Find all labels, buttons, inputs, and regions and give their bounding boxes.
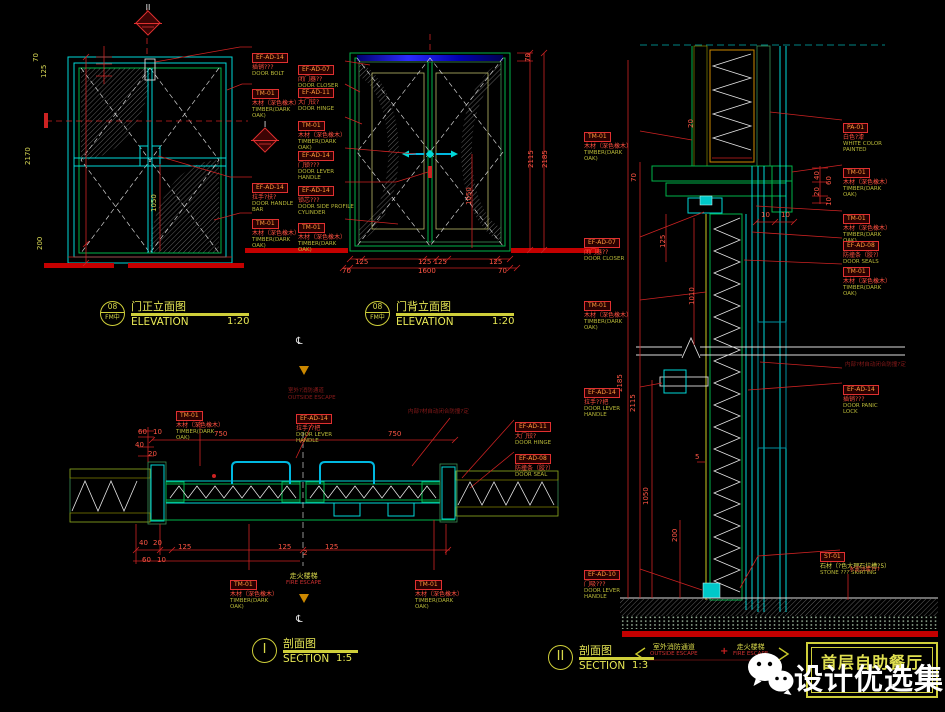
note-en: OUTSIDE ESCAPE: [288, 395, 336, 402]
material-label-cn: 锁芯???: [298, 197, 358, 204]
material-label: EF-AD-14锁芯???DOOR SIDE PROFILE CYLINDER: [298, 177, 358, 216]
material-code: EF-AD-11: [298, 88, 334, 98]
insulation-zigzag: [72, 481, 137, 511]
dimension-text: 1600: [418, 267, 436, 275]
dimension-text: 125: [278, 543, 291, 551]
dimension-text: 10: [825, 197, 833, 206]
view-caption: I剖面图SECTION1:5: [252, 638, 372, 668]
material-label: TM-01木材（深色橡木）TIMBER(DARK OAK): [230, 571, 276, 610]
material-label: TM-01木材（深色橡木）TIMBER(DARK OAK): [176, 402, 222, 441]
material-code: TM-01: [584, 301, 611, 311]
material-label-en: TIMBER(DARK OAK): [252, 237, 298, 249]
material-label-cn: 木材（深色橡木）: [176, 422, 222, 429]
material-code: EF-AD-08: [843, 241, 879, 251]
material-code: TM-01: [415, 580, 442, 590]
material-label: TM-01木材（深色橡木）TIMBER(DARK OAK): [415, 571, 461, 610]
drawing-linework: [0, 0, 945, 712]
dimension-text: 40: [135, 441, 144, 449]
material-code: EF-AD-08: [515, 454, 551, 464]
caption-scale: 1:3: [632, 660, 648, 671]
material-label: EF-AD-14门锁???DOOR LEVER HANDLE: [298, 142, 344, 181]
material-label: EF-AD-08防撞条（胶?）DOOR SEAL: [515, 445, 561, 478]
material-label-en: DOOR LEVER HANDLE: [584, 406, 630, 418]
note-text: 水泥沙浆???: [849, 567, 880, 574]
dimension-text: 5: [695, 453, 699, 461]
material-label-cn: 防撞条（胶?）: [515, 465, 561, 472]
material-label-en: DOOR LEVER HANDLE: [584, 588, 630, 600]
material-code: EF-AD-14: [252, 53, 288, 63]
material-label: EF-AD-14插销???DOOR BOLT: [252, 44, 298, 77]
section-cut-marker: I: [251, 120, 279, 130]
material-label-en: TIMBER(DARK OAK): [230, 598, 276, 610]
material-label-cn: 木材（深色橡木）: [252, 100, 298, 107]
material-label-cn: 大门铰?: [298, 99, 344, 106]
cad-drawing-canvas: EF-AD-14插销???DOOR BOLTTM-01木材（深色橡木）TIMBE…: [0, 0, 945, 712]
section-cut-ref: [259, 143, 271, 145]
dimension-text: 20: [153, 539, 162, 547]
view-caption: II剖面图SECTION1:3: [548, 645, 668, 675]
dimension-text: 60: [825, 176, 833, 185]
material-label-en: TIMBER(DARK OAK): [843, 186, 889, 198]
dimension-text: 20: [687, 119, 695, 128]
dimension-text: 2115: [527, 150, 535, 168]
caption-title-en: SECTION: [283, 653, 329, 665]
material-label: TM-01木材（深色橡木）TIMBER(DARK OAK): [298, 214, 344, 253]
material-label: TM-01木材（深色橡木）TIMBER(DARK OAK): [252, 210, 298, 249]
material-code: TM-01: [843, 214, 870, 224]
dimension-text: 10: [761, 211, 770, 219]
caption-bubble-top: 08: [101, 302, 124, 313]
note-text: 内部?材自动闭合防撞?定: [408, 409, 469, 416]
caption-scale: 1:20: [227, 316, 249, 327]
material-label-cn: 木材（深色橡木）: [584, 143, 630, 150]
material-label-cn: 拉手??把: [584, 399, 630, 406]
material-code: TM-01: [843, 267, 870, 277]
dimension-text: 200: [36, 237, 44, 250]
material-label-cn: 木材（深色橡木）: [843, 179, 889, 186]
material-code: ST-01: [820, 552, 845, 562]
material-label-en: DOOR LEVER HANDLE: [296, 432, 342, 444]
plus-mark: +: [720, 646, 728, 657]
material-label-cn: 白色?漆: [843, 134, 889, 141]
dimension-text: 60: [142, 556, 151, 564]
dimension-text: 70: [32, 53, 40, 62]
dimension-text: 60: [138, 428, 147, 436]
material-label: EF-AD-14插销???DOOR PANIC LOCK: [843, 376, 889, 415]
dimension-text: 200: [671, 529, 679, 542]
section-cut-ref: [142, 26, 154, 28]
material-label-cn: 木材（深色橡木）: [843, 278, 889, 285]
wechat-icon: [746, 650, 794, 698]
insulation-zigzag: [713, 54, 751, 150]
caption-title-cn: 门背立面图: [396, 298, 451, 314]
caption-title-cn: 剖面图: [283, 635, 316, 651]
material-label-en: TIMBER(DARK OAK): [176, 429, 222, 441]
watermark-text: 设计优选集: [794, 656, 944, 698]
material-label-en: DOOR PANIC LOCK: [843, 403, 889, 415]
dimension-text: 2: [303, 549, 307, 557]
material-code: TM-01: [252, 89, 279, 99]
material-label-en: TIMBER(DARK OAK): [843, 285, 889, 297]
down-arrow-icon: [299, 366, 309, 375]
material-label: EF-AD-11大门铰?DOOR HINGE: [298, 79, 344, 112]
material-code: EF-AD-14: [252, 183, 288, 193]
material-code: TM-01: [298, 223, 325, 233]
caption-bubble: I: [252, 638, 277, 663]
dimension-text: 10: [781, 211, 790, 219]
view-caption: 08FM中门背立面图ELEVATION1:20: [365, 301, 528, 331]
note-cn: 内部?材自动闭合防撞?定: [845, 362, 906, 369]
caption-bubble-bottom: FM中: [101, 313, 124, 322]
caption-bubble: 08FM中: [365, 301, 390, 326]
material-label: EF-AD-14拉手?扶?DOOR HANDLE BAR: [252, 174, 298, 213]
material-label: EF-AD-14拉手??把DOOR LEVER HANDLE: [584, 379, 630, 418]
material-label-en: TIMBER(DARK OAK): [584, 319, 630, 331]
note-cn: 走火楼梯: [286, 572, 321, 580]
material-label: TM-01木材（深色橡木）TIMBER(DARK OAK): [584, 292, 630, 331]
material-label: PA-01白色?漆WHITE COLOR PAINTED: [843, 114, 889, 153]
material-label-en: TIMBER(DARK OAK): [252, 107, 298, 119]
dimension-text: 1050: [150, 194, 158, 212]
material-label-cn: 大门铰?: [515, 433, 561, 440]
material-label-cn: 插销???: [843, 396, 889, 403]
note-en: FIRE ESCAPE: [286, 580, 321, 587]
dimension-text: 10: [157, 556, 166, 564]
material-label: EF-AD-07闭门器??DOOR CLOSER: [584, 229, 630, 262]
dimension-text: 2185: [541, 150, 549, 168]
material-label: TM-01木材（深色橡木）TIMBER(DARK OAK): [843, 159, 889, 198]
material-label-cn: 门吸???: [584, 581, 630, 588]
caption-scale: 1:20: [492, 316, 514, 327]
material-code: PA-01: [843, 123, 868, 133]
dimension-text: 125: [325, 543, 338, 551]
material-label-en: DOOR SEAL: [515, 472, 561, 478]
note-text: 内部?材自动闭合防撞?定: [845, 362, 906, 369]
material-code: TM-01: [843, 168, 870, 178]
material-label-cn: 门锁???: [298, 162, 344, 169]
dimension-text: 750: [388, 430, 401, 438]
down-arrow-icon: [299, 594, 309, 603]
material-label: TM-01木材（深色橡木）TIMBER(DARK OAK): [843, 258, 889, 297]
dimension-text: 40: [813, 171, 821, 180]
dimension-text: 70: [498, 267, 507, 275]
material-label-en: DOOR CLOSER: [584, 256, 630, 262]
caption-title-en: ELEVATION: [131, 316, 189, 328]
watermark: 设计优选集: [742, 640, 945, 710]
insulation-zigzag: [170, 486, 296, 498]
dimension-text: 70: [342, 267, 351, 275]
material-label-cn: 插销???: [252, 64, 298, 71]
material-code: EF-AD-07: [298, 65, 334, 75]
material-code: EF-AD-14: [298, 151, 334, 161]
section-cut-line: [134, 23, 162, 24]
material-label-en: TIMBER(DARK OAK): [415, 598, 461, 610]
note-cn: 内部?材自动闭合防撞?定: [408, 409, 469, 416]
insulation-zigzag: [458, 482, 554, 505]
dimension-text: 125 125: [418, 258, 447, 266]
dimension-text: 10: [153, 428, 162, 436]
dimension-text: 20: [148, 450, 157, 458]
dimension-text: 125: [489, 258, 502, 266]
material-label-cn: 木材（深色橡木）: [230, 591, 276, 598]
caption-bubble: 08FM中: [100, 301, 125, 326]
section-cut-marker: II: [134, 3, 162, 13]
dimension-text: 2170: [24, 147, 32, 165]
dimension-text: 2115: [629, 394, 637, 412]
note-text: 室外?消防通道OUTSIDE ESCAPE: [288, 388, 336, 402]
material-code: EF-AD-07: [584, 238, 620, 248]
dimension-text: 1050: [642, 487, 650, 505]
material-code: TM-01: [298, 121, 325, 131]
material-code: TM-01: [584, 132, 611, 142]
dimension-text: 70: [630, 173, 638, 182]
dimension-text: 125: [40, 65, 48, 78]
caption-bubble: II: [548, 645, 573, 670]
material-label-en: TIMBER(DARK OAK): [298, 241, 344, 253]
material-code: EF-AD-14: [843, 385, 879, 395]
material-label-cn: 木材（深色橡木）: [415, 591, 461, 598]
material-label-cn: 木材（深色橡木）: [584, 312, 630, 319]
insulation-zigzag: [714, 218, 740, 592]
dimension-text: 125: [355, 258, 368, 266]
material-label-cn: 拉手??把: [296, 425, 342, 432]
material-code: EF-AD-14: [298, 186, 334, 196]
dimension-text: 1010: [688, 287, 696, 305]
material-code: EF-AD-10: [584, 570, 620, 580]
note-cn: 水泥沙浆???: [849, 567, 880, 574]
caption-title-en: ELEVATION: [396, 316, 454, 328]
material-label: EF-AD-10门吸???DOOR LEVER HANDLE: [584, 561, 630, 600]
insulation-zigzag: [310, 486, 436, 498]
centerline-symbol: ℄: [296, 614, 302, 625]
material-label-cn: 木材（深色橡木）: [843, 225, 889, 232]
material-code: TM-01: [176, 411, 203, 421]
material-label: TM-01木材（深色橡木）TIMBER(DARK OAK): [584, 123, 630, 162]
dimension-text: 1050: [465, 187, 473, 205]
dimension-text: 125: [659, 235, 667, 248]
material-label-en: DOOR BOLT: [252, 71, 298, 77]
view-caption: 08FM中门正立面图ELEVATION1:20: [100, 301, 263, 331]
caption-scale: 1:5: [336, 653, 352, 664]
material-label-cn: 拉手?扶?: [252, 194, 298, 201]
note-text: 走火楼梯FIRE ESCAPE: [286, 572, 321, 587]
material-code: TM-01: [252, 219, 279, 229]
note-cn: 室外?消防通道: [288, 388, 336, 395]
material-code: EF-AD-14: [296, 414, 332, 424]
dimension-text: 20: [813, 187, 821, 196]
material-label: EF-AD-11大门铰?DOOR HINGE: [515, 413, 561, 446]
caption-bubble-bottom: FM中: [366, 313, 389, 322]
material-code: EF-AD-11: [515, 422, 551, 432]
material-label-cn: 闭门器??: [584, 249, 630, 256]
centerline-symbol: ℄: [296, 336, 302, 347]
material-label: TM-01木材（深色橡木）TIMBER(DARK OAK): [252, 80, 298, 119]
caption-title-cn: 剖面图: [579, 642, 612, 658]
caption-bubble-top: 08: [366, 302, 389, 313]
section-cut-line: [251, 140, 279, 141]
material-code: TM-01: [230, 580, 257, 590]
dimension-text: 125: [178, 543, 191, 551]
dimension-text: 40: [139, 539, 148, 547]
material-label-cn: 木材（深色橡木）: [298, 132, 344, 139]
material-label-cn: 木材（深色橡木）: [252, 230, 298, 237]
material-code: EF-AD-14: [584, 388, 620, 398]
material-label-en: TIMBER(DARK OAK): [584, 150, 630, 162]
material-label-cn: 木材（深色橡木）: [298, 234, 344, 241]
caption-title-en: SECTION: [579, 660, 625, 672]
dimension-text: 70: [524, 53, 532, 62]
material-label: EF-AD-14拉手??把DOOR LEVER HANDLE: [296, 405, 342, 444]
caption-title-cn: 门正立面图: [131, 298, 186, 314]
material-label-en: WHITE COLOR PAINTED: [843, 141, 889, 153]
